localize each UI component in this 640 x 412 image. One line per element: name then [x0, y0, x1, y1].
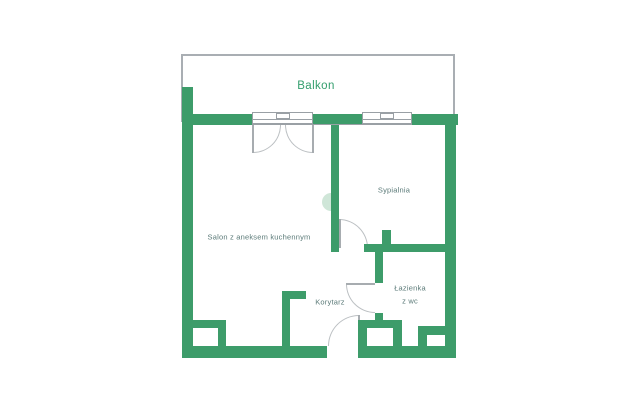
shaft-bottom-left-right [218, 320, 226, 347]
bathroom-label: Łazienka z wc [394, 283, 426, 308]
window-mid-line [363, 119, 411, 120]
entrance-door-arc [328, 315, 359, 346]
bathroom-door-leaf [346, 283, 375, 285]
wall-bedroom-divider [331, 114, 339, 252]
wall-bathroom-upper [375, 252, 383, 283]
wall-corridor [282, 291, 290, 346]
balcony-label: Balkon [297, 80, 335, 92]
window-mid-line [253, 119, 312, 120]
bedroom-door-leaf [339, 219, 341, 248]
corridor-label: Korytarz [315, 298, 345, 307]
wall-top-left [182, 114, 252, 125]
bathroom-label-line1: Łazienka [394, 283, 426, 296]
shaft-bottom-right-left [418, 326, 427, 347]
balcony-door-arc-left [253, 125, 281, 153]
balcony-door-arc-right [285, 125, 313, 153]
balcony-door-leaf-right [312, 125, 314, 153]
bedroom-label: Sypialnia [378, 186, 410, 195]
bathroom-door-arc [346, 284, 375, 313]
wall-bottom-right [358, 346, 456, 358]
wall-bedroom-bottom [364, 244, 445, 252]
wall-bedroom-stub [382, 230, 391, 244]
living-room-label: Salon z aneksem kuchennym [208, 233, 311, 242]
wall-bottom-left [182, 346, 327, 358]
wall-corridor-stub [282, 291, 306, 299]
wall-left [182, 87, 193, 358]
window-sill-line [252, 124, 412, 125]
window-bedroom [362, 112, 412, 124]
bathroom-label-line2: z wc [394, 295, 426, 308]
shaft-bathroom-right [393, 320, 402, 347]
floor-plan: Balkon Sypialnia Salon z aneksem kuchenn… [0, 0, 640, 412]
sliding-door-accent [322, 193, 331, 211]
balcony-door-leaf-left [252, 125, 254, 153]
window-living-room [252, 112, 313, 124]
wall-right [445, 114, 456, 358]
